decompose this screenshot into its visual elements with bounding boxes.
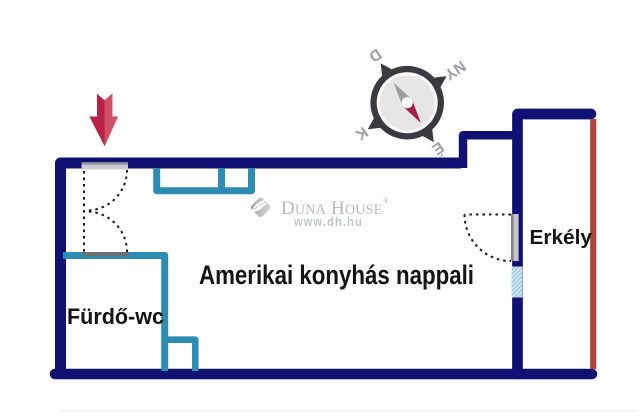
svg-text:Erkély: Erkély (530, 227, 593, 249)
svg-text:D: D (366, 45, 385, 65)
svg-text:www.dh.hu: www.dh.hu (293, 214, 363, 229)
svg-text:K: K (351, 123, 370, 144)
svg-text:Amerikai konyhás nappali: Amerikai konyhás nappali (199, 260, 474, 290)
svg-text:®: ® (383, 197, 389, 206)
svg-text:Fürdő-wc: Fürdő-wc (67, 304, 164, 329)
svg-text:NY: NY (441, 57, 469, 84)
svg-text:É: É (429, 138, 447, 158)
